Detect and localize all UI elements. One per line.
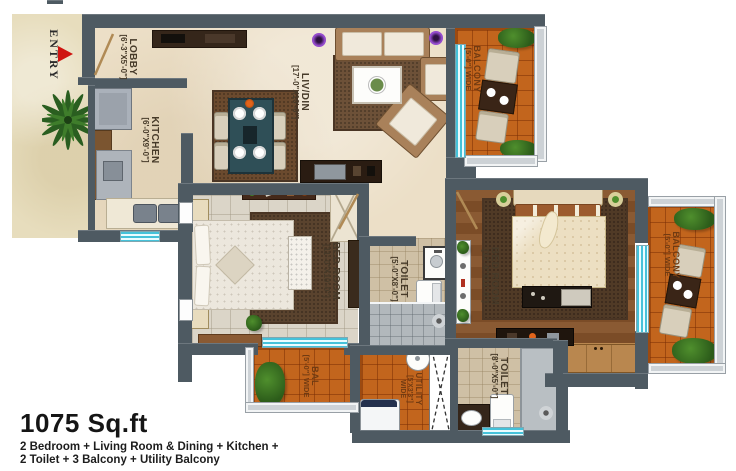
floor-plan: ENTRY	[0, 0, 736, 471]
door-swing-lines	[0, 0, 736, 471]
door-leaf-line	[95, 34, 113, 75]
door-leaf-line	[339, 194, 358, 229]
door-leaf-line	[457, 192, 477, 229]
